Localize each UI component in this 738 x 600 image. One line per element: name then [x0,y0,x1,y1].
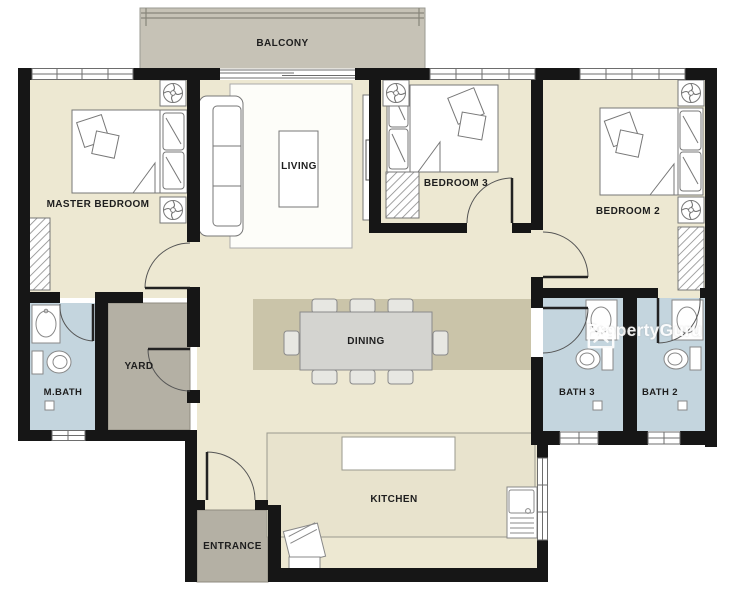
watermark: PropertyGuru [586,320,702,341]
kitchen-label: KITCHEN [352,494,436,505]
living-label: LIVING [263,161,335,172]
cushion [458,112,486,140]
balcony-label: BALCONY [140,38,425,49]
floor-trap [678,401,687,410]
fan-icon [160,80,186,106]
dining-chair [284,331,299,355]
wardrobe [27,218,50,290]
yard-label: YARD [106,361,172,372]
master-bedroom-label: MASTER BEDROOM [18,199,178,210]
bath2-label: BATH 2 [628,387,692,398]
stove [283,523,325,571]
kitchen-island [342,437,455,470]
kitchen-sink [507,487,537,538]
window-kitchen [538,458,548,540]
floor-plan: BALCONY MASTER BEDROOM LIVING BEDROOM 3 … [0,0,738,600]
floor-trap [45,401,54,410]
fan-icon [383,80,409,106]
cushion [92,131,119,158]
toilet-tank [32,351,43,374]
window-bath3 [560,432,598,444]
wardrobe [678,227,704,290]
toilet-tank [690,347,701,370]
dining-chair [388,299,413,313]
bedroom3-label: BEDROOM 3 [396,178,516,189]
dining-label: DINING [316,336,416,347]
dining-chair [350,299,375,313]
dining-chair [388,370,413,384]
window-master-bath [52,431,85,441]
fan-icon [678,80,704,106]
window-bedroom3 [430,69,535,80]
bath3-label: BATH 3 [541,387,613,398]
master-bath-label: M.BATH [30,387,96,398]
balcony-sliding-door [220,69,355,80]
cushion [616,130,643,157]
propertyguru-house-chevron-icon [586,320,616,350]
window-bath2 [648,432,680,444]
sofa-seat [213,106,241,226]
floorplan-graphics [0,0,738,600]
dining-chair [312,370,337,384]
dining-chair [433,331,448,355]
floor-trap [593,401,602,410]
entrance-label: ENTRANCE [197,541,268,552]
window-bedroom2 [580,69,685,80]
dining-chair [350,370,375,384]
bedroom2-label: BEDROOM 2 [568,206,688,217]
window-master [32,69,133,80]
dining-chair [312,299,337,313]
toilet-tank [602,347,613,370]
